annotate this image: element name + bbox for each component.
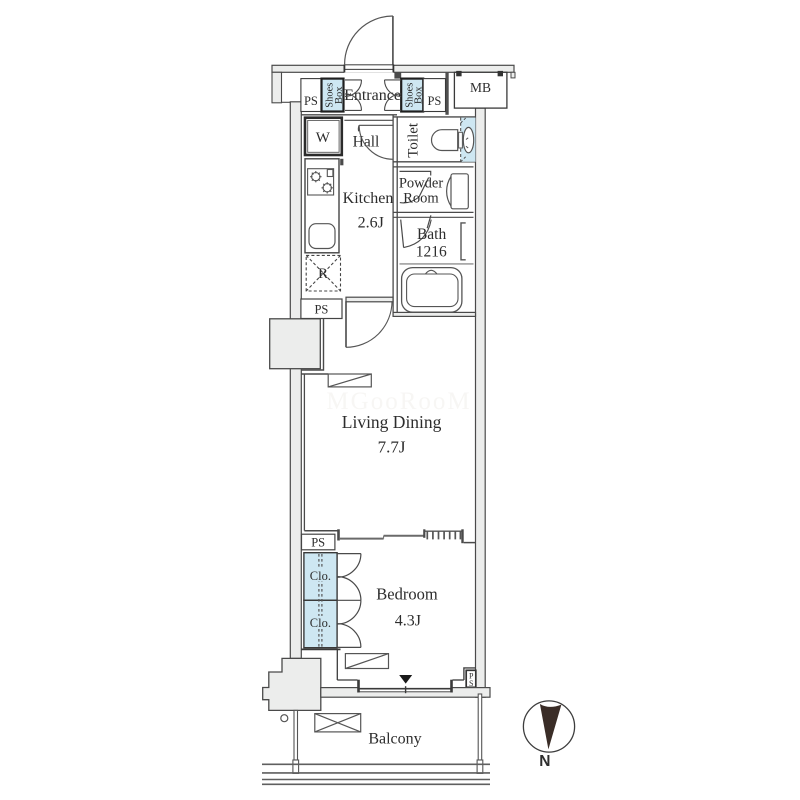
svg-text:R: R xyxy=(318,266,328,282)
svg-text:Room: Room xyxy=(403,191,439,207)
svg-text:Living Dining: Living Dining xyxy=(342,412,442,432)
svg-text:PS: PS xyxy=(427,94,441,108)
svg-text:Clo.: Clo. xyxy=(310,569,331,583)
svg-text:7.7J: 7.7J xyxy=(378,437,406,456)
svg-text:4.3J: 4.3J xyxy=(395,613,421,630)
svg-text:2.6J: 2.6J xyxy=(358,215,384,232)
svg-text:Kitchen: Kitchen xyxy=(343,190,394,207)
svg-text:MGooRooM: MGooRooM xyxy=(326,388,471,415)
svg-text:PS: PS xyxy=(311,536,325,550)
svg-text:Bath: Bath xyxy=(417,226,447,243)
svg-text:MB: MB xyxy=(470,80,491,95)
svg-text:PS: PS xyxy=(314,302,328,316)
svg-text:Powder: Powder xyxy=(399,176,443,192)
svg-text:PS: PS xyxy=(304,94,318,108)
svg-text:Clo.: Clo. xyxy=(310,616,331,630)
svg-text:S: S xyxy=(469,679,473,688)
svg-text:Hall: Hall xyxy=(353,133,380,150)
svg-text:Toilet: Toilet xyxy=(405,122,421,158)
svg-text:1216: 1216 xyxy=(416,244,447,261)
svg-text:Bedroom: Bedroom xyxy=(376,584,438,603)
svg-text:Balcony: Balcony xyxy=(368,731,421,748)
svg-text:W: W xyxy=(316,130,331,146)
svg-text:N: N xyxy=(539,753,550,770)
